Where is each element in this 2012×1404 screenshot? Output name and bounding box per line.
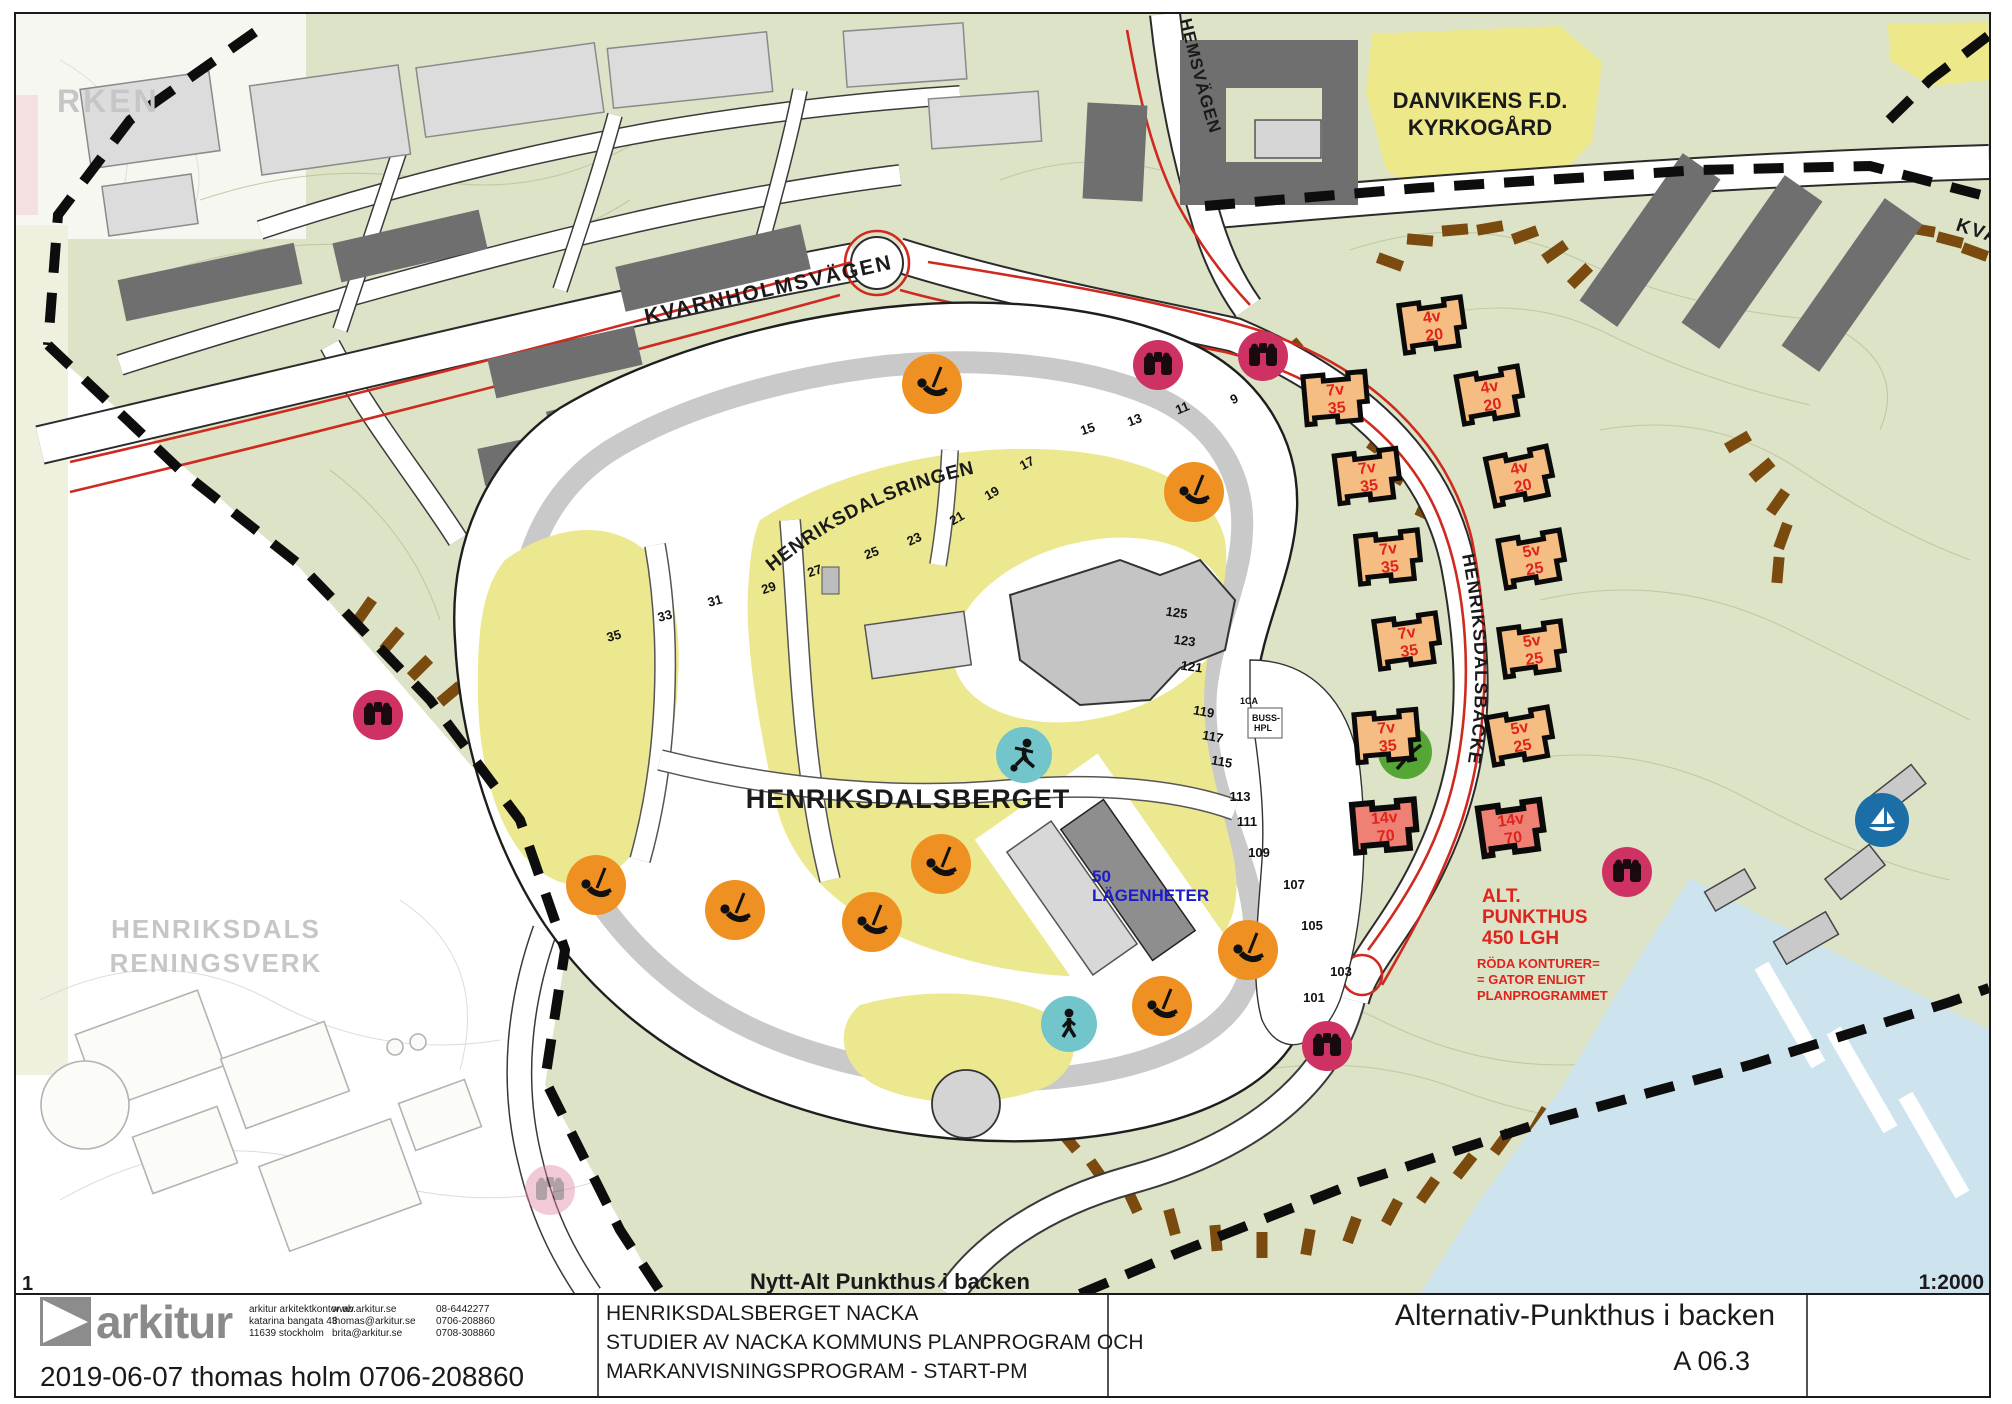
svg-text:20: 20 [1424, 326, 1444, 345]
park-label-partial: RKEN [57, 83, 160, 119]
annotation-1ca: 1CA [1240, 696, 1259, 706]
drawing-number: A 06.3 [1673, 1346, 1750, 1376]
svg-text:HENRIKSDALSBERGET NACKA: HENRIKSDALSBERGET NACKA [606, 1302, 918, 1325]
svg-text:MARKANVISNINGSPROGRAM - START-: MARKANVISNINGSPROGRAM - START-PM [606, 1360, 1028, 1383]
svg-text:35: 35 [1327, 399, 1346, 417]
punkthus-label: 4v [1422, 308, 1442, 327]
scale-label: 1:2000 [1919, 1271, 1984, 1294]
svg-text:0708-308860: 0708-308860 [436, 1328, 495, 1339]
punkthus-label: 7v [1378, 540, 1398, 559]
svg-text:www.arkitur.se: www.arkitur.se [331, 1304, 397, 1315]
svg-text:123: 123 [1173, 632, 1197, 650]
svg-text:103: 103 [1330, 964, 1352, 979]
svg-text:70: 70 [1376, 827, 1395, 845]
annotation-rednote-1: RÖDA KONTURER= [1477, 956, 1600, 971]
drawing-title: Alternativ-Punkthus i backen [1395, 1299, 1775, 1332]
punkthus-label: 5v [1521, 542, 1542, 562]
svg-text:101: 101 [1303, 990, 1325, 1005]
svg-text:70: 70 [1503, 829, 1523, 848]
page-number: 1 [22, 1273, 33, 1295]
svg-text:121: 121 [1180, 658, 1204, 676]
site-plan-map: 4v20 7v35 4v20 7v35 4v20 7v35 5v25 7v35 … [0, 0, 2012, 1404]
drawing-sheet: 4v20 7v35 4v20 7v35 4v20 7v35 5v25 7v35 … [0, 0, 2012, 1404]
punkthus-label: 14v [1370, 809, 1398, 828]
cemetery-label-1: DANVIKENS F.D. [1393, 88, 1568, 113]
map-canvas: 4v20 7v35 4v20 7v35 4v20 7v35 5v25 7v35 … [0, 0, 2012, 1295]
cemetery-label-2: KYRKOGÅRD [1408, 114, 1552, 140]
svg-text:35: 35 [1399, 642, 1419, 661]
svg-text:109: 109 [1248, 845, 1270, 860]
punkthus-label: 4v [1509, 459, 1530, 479]
annotation-alt-3: 450 LGH [1482, 928, 1559, 949]
svg-text:11639 stockholm: 11639 stockholm [249, 1328, 324, 1339]
svg-text:08-6442277: 08-6442277 [436, 1304, 490, 1315]
svg-text:katarina bangata 43: katarina bangata 43 [249, 1316, 338, 1327]
logo-text: arkitur [96, 1296, 233, 1348]
svg-text:STUDIER AV NACKA KOMMUNS PLANP: STUDIER AV NACKA KOMMUNS PLANPROGRAM OCH [606, 1331, 1144, 1354]
svg-text:brita@arkitur.se: brita@arkitur.se [332, 1328, 403, 1339]
svg-text:35: 35 [1378, 737, 1397, 755]
punkthus-label: 7v [1326, 381, 1345, 399]
punkthus-label: 7v [1377, 719, 1396, 737]
svg-text:111: 111 [1237, 814, 1257, 829]
annotation-alt-1: ALT. [1482, 886, 1521, 907]
svg-text:20: 20 [1482, 395, 1503, 415]
project-description: HENRIKSDALSBERGET NACKA STUDIER AV NACKA… [606, 1302, 1144, 1383]
annotation-rednote-2: = GATOR ENLIGT [1477, 972, 1585, 987]
annotation-rednote-3: PLANPROGRAMMET [1477, 988, 1608, 1003]
contact-info: arkitur arkitektkontor ab katarina banga… [249, 1304, 495, 1339]
svg-text:thomas@arkitur.se: thomas@arkitur.se [332, 1316, 416, 1327]
svg-text:25: 25 [1512, 736, 1533, 756]
edge-hatch [16, 95, 38, 215]
punkthus-label: 4v [1479, 378, 1500, 398]
area-label-henriksdalsberget: HENRIKSDALSBERGET [746, 784, 1071, 814]
svg-text:105: 105 [1301, 918, 1323, 933]
svg-text:35: 35 [1380, 558, 1400, 577]
area-label-reningsverk-2: RENINGSVERK [110, 948, 323, 978]
date-signature-line: 2019-06-07 thomas holm 0706-208860 [40, 1361, 524, 1392]
area-label-reningsverk-1: HENRIKSDALS [111, 914, 321, 944]
svg-text:25: 25 [1524, 650, 1544, 669]
svg-text:125: 125 [1165, 604, 1189, 622]
svg-text:25: 25 [1524, 559, 1545, 579]
svg-text:20: 20 [1513, 476, 1534, 496]
annotation-alt-2: PUNKTHUS [1482, 907, 1588, 928]
punkthus-label: 5v [1509, 719, 1530, 739]
annotation-buss-2: HPL [1254, 723, 1273, 733]
annotation-buss-1: BUSS- [1252, 713, 1280, 723]
punkthus-label: 5v [1522, 632, 1542, 651]
svg-text:0706-208860: 0706-208860 [436, 1316, 495, 1327]
punkthus-label: 7v [1357, 459, 1377, 478]
punkthus-label: 7v [1397, 624, 1417, 643]
annotation-50-lgh-2: LÄGENHETER [1092, 886, 1209, 905]
annotation-50-lgh-1: 50 [1092, 867, 1111, 886]
svg-text:35: 35 [1359, 477, 1379, 496]
svg-text:107: 107 [1283, 877, 1305, 892]
svg-text:113: 113 [1230, 789, 1251, 804]
map-bottom-title: Nytt-Alt Punkthus i backen [750, 1269, 1030, 1294]
